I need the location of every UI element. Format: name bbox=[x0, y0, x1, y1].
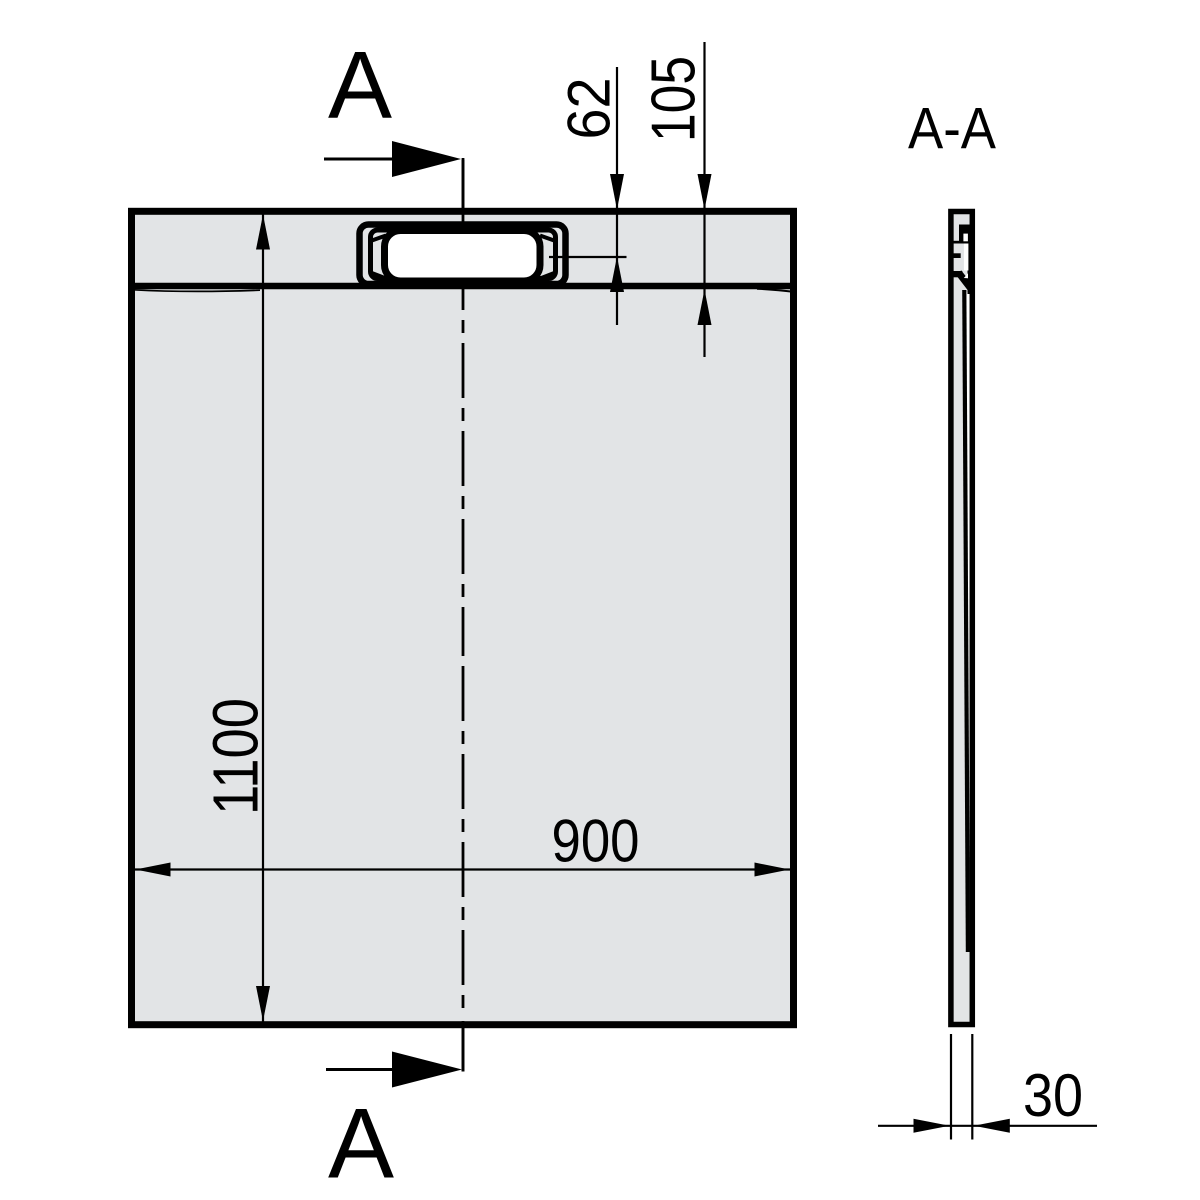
svg-text:900: 900 bbox=[552, 808, 640, 875]
svg-text:62: 62 bbox=[556, 78, 623, 140]
svg-text:A-A: A-A bbox=[908, 97, 996, 162]
svg-text:A: A bbox=[328, 32, 392, 139]
svg-text:105: 105 bbox=[640, 56, 709, 142]
svg-text:A: A bbox=[328, 1088, 394, 1199]
svg-text:30: 30 bbox=[1023, 1062, 1083, 1129]
svg-text:1100: 1100 bbox=[200, 698, 272, 815]
